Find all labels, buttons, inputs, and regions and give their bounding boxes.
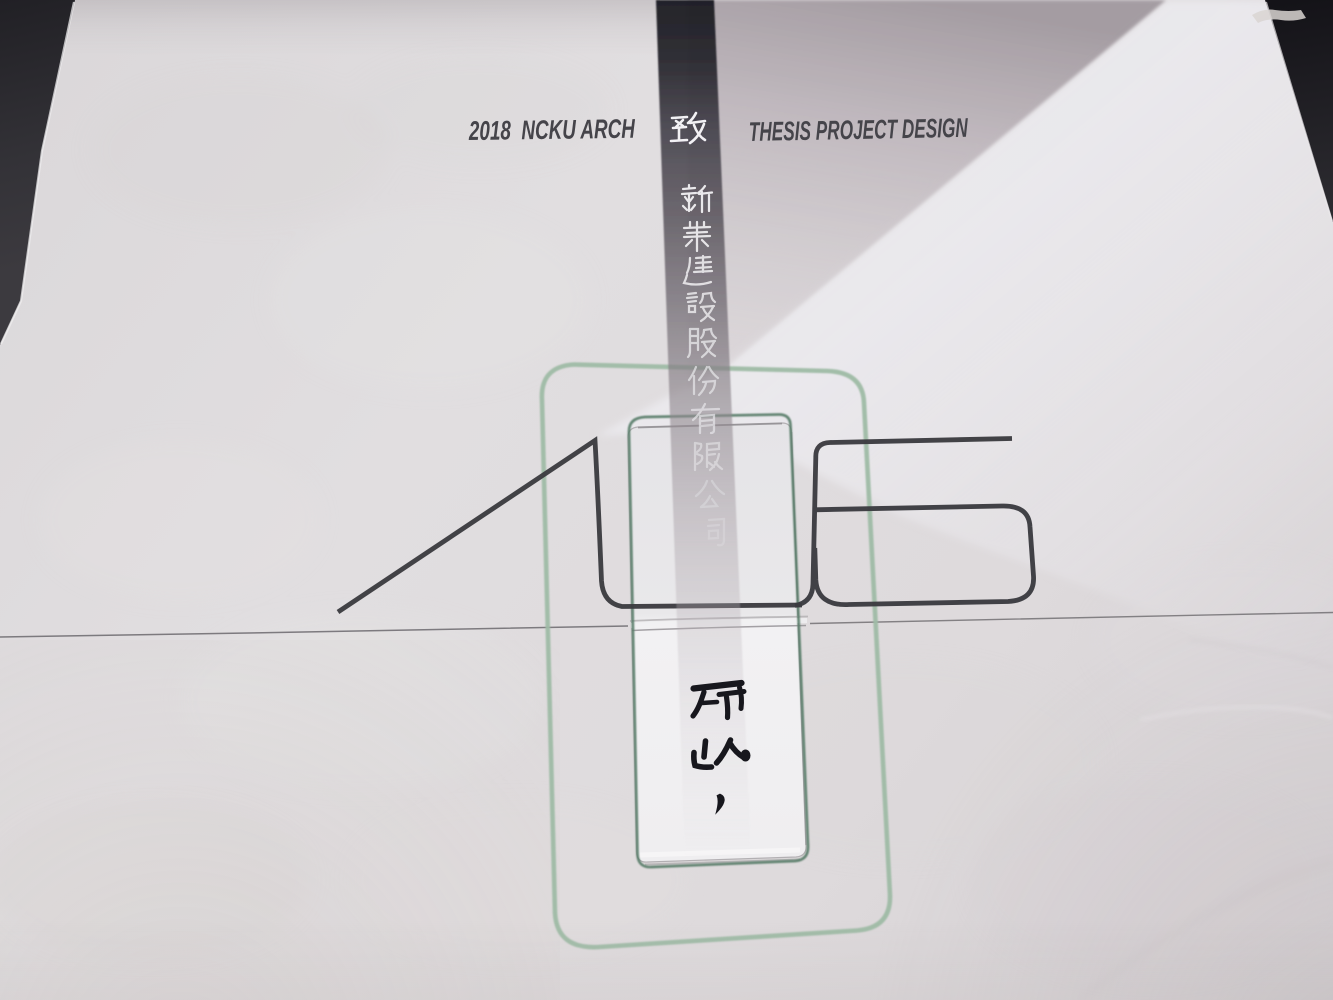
svg-text:2018 NCKU ARCH: 2018 NCKU ARCH bbox=[468, 114, 635, 146]
svg-text:THESIS PROJECT DESIGN: THESIS PROJECT DESIGN bbox=[749, 113, 969, 147]
